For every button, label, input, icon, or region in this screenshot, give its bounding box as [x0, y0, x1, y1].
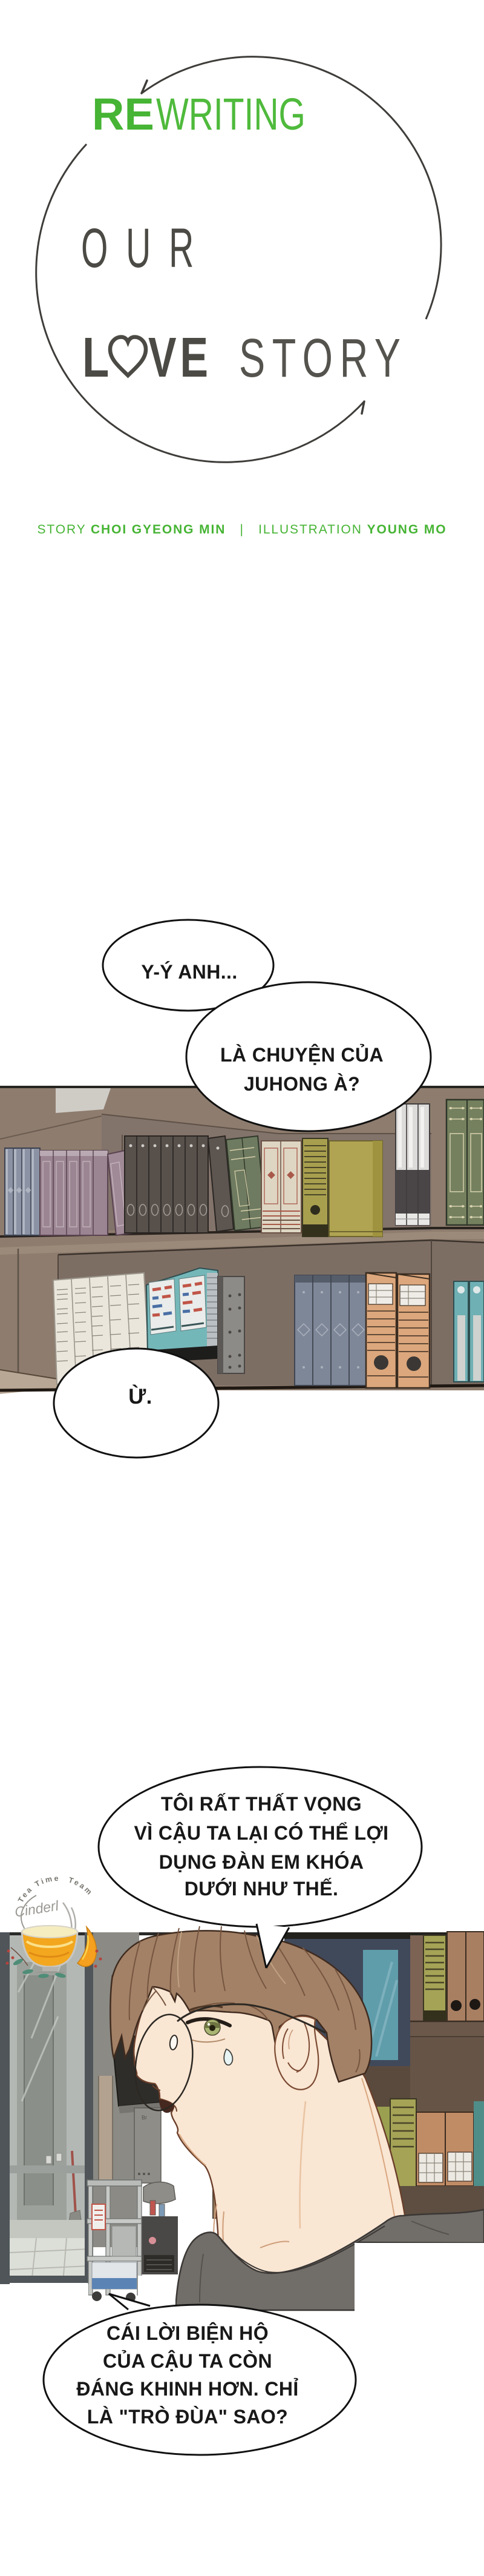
- svg-text:Br: Br: [142, 2115, 147, 2121]
- svg-text:VE: VE: [148, 326, 212, 389]
- svg-text:L: L: [82, 326, 109, 389]
- svg-text:JUHONG À?: JUHONG À?: [244, 1073, 360, 1095]
- svg-text:LÀ "TRÒ ĐÙA" SAO?: LÀ "TRÒ ĐÙA" SAO?: [87, 2406, 288, 2428]
- svg-text:OUR: OUR: [81, 217, 212, 279]
- svg-text:RE: RE: [92, 89, 154, 139]
- svg-text:DƯỚI NHƯ THẾ.: DƯỚI NHƯ THẾ.: [185, 1878, 338, 1900]
- svg-text:ĐÁNG KHINH HƠN. CHỈ: ĐÁNG KHINH HƠN. CHỈ: [76, 2378, 298, 2400]
- svg-text:DỤNG ĐÀN EM KHÓA: DỤNG ĐÀN EM KHÓA: [159, 1851, 364, 1873]
- svg-text:STORY CHOI GYEONG MIN | IL: STORY CHOI GYEONG MIN | ILLUSTRATION YOU…: [38, 523, 447, 537]
- svg-text:LÀ CHUYỆN CỦA: LÀ CHUYỆN CỦA: [220, 1044, 384, 1066]
- svg-text:CÁI LỜI BIỆN HỘ: CÁI LỜI BIỆN HỘ: [106, 2322, 269, 2344]
- svg-text:VÌ CẬU TA LẠI CÓ THỂ LỢI: VÌ CẬU TA LẠI CÓ THỂ LỢI: [134, 1822, 389, 1844]
- svg-text:WRITING: WRITING: [156, 89, 306, 139]
- svg-text:CỦA CẬU TA CÒN: CỦA CẬU TA CÒN: [103, 2350, 272, 2372]
- svg-text:TÔI RẤT THẤT VỌNG: TÔI RẤT THẤT VỌNG: [161, 1793, 362, 1815]
- svg-text:Y-Ý ANH...: Y-Ý ANH...: [141, 961, 237, 983]
- svg-text:STORY: STORY: [239, 328, 407, 389]
- svg-text:Ừ.: Ừ.: [128, 1384, 152, 1409]
